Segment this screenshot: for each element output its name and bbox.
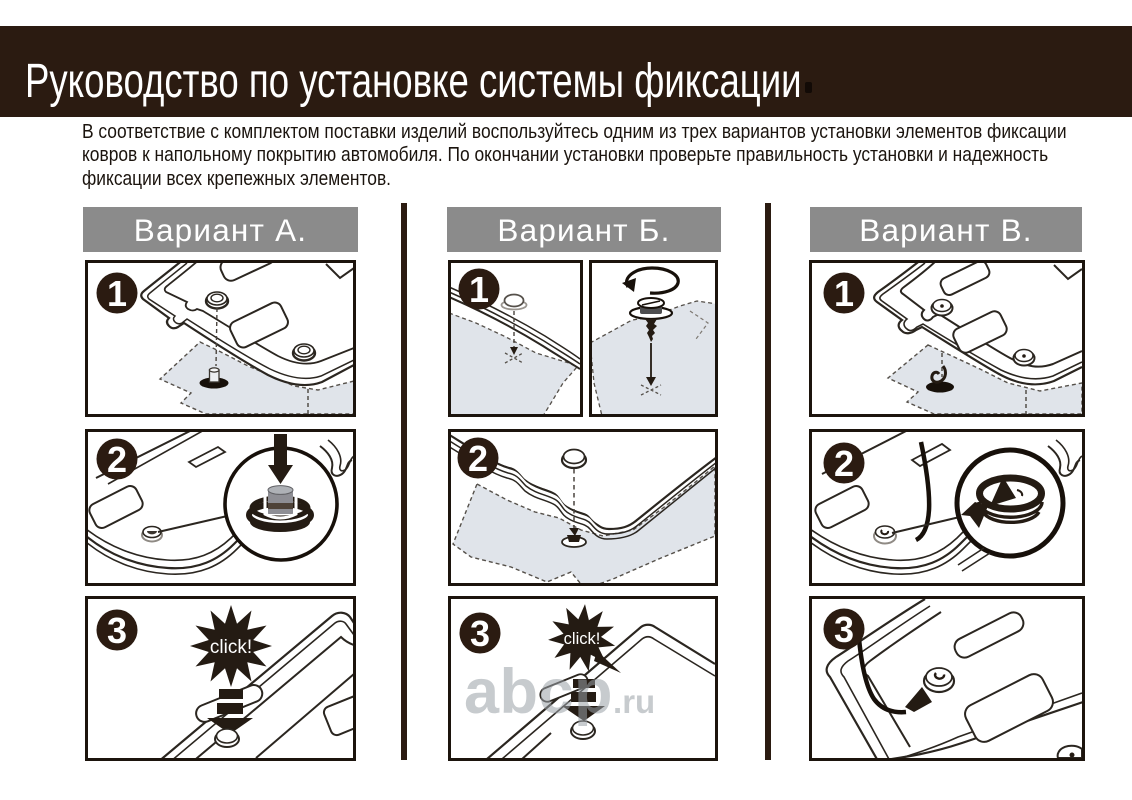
svg-text:2: 2	[107, 439, 127, 480]
svg-text:3: 3	[470, 613, 490, 654]
svg-text:2: 2	[834, 443, 854, 484]
svg-text:2: 2	[468, 438, 488, 479]
svg-text:click!: click!	[210, 637, 252, 658]
svg-text:3: 3	[107, 610, 127, 651]
svg-text:1: 1	[834, 273, 854, 314]
svg-text:1: 1	[107, 273, 127, 314]
svg-text:click!: click!	[564, 630, 601, 648]
svg-text:3: 3	[834, 609, 854, 650]
svg-text:1: 1	[469, 269, 489, 310]
